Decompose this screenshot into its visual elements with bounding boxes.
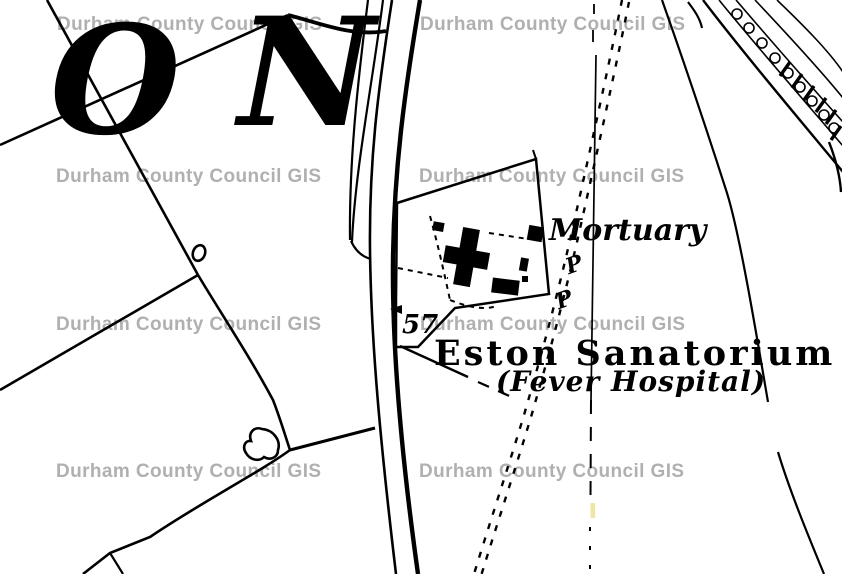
quarry-band bbox=[703, 0, 842, 192]
boundary-line bbox=[198, 275, 290, 450]
highlighted-dash bbox=[591, 503, 596, 518]
quarry-dark-hatch bbox=[780, 62, 841, 140]
vertical-boundary-top-dashes bbox=[593, 4, 594, 42]
field-boundary-right bbox=[662, 0, 824, 574]
boundary-fork bbox=[110, 553, 123, 574]
boundary-junction-loop bbox=[191, 243, 208, 262]
enclosure-tick bbox=[533, 150, 536, 159]
boundary-line bbox=[778, 452, 824, 574]
vertical-boundary-long-dashes bbox=[591, 400, 592, 498]
outbuilding bbox=[432, 221, 444, 232]
quarry-stripe bbox=[777, 0, 842, 72]
district-letter-o: O bbox=[50, 6, 181, 156]
mortuary-building bbox=[527, 225, 544, 242]
boundary-line-tail bbox=[688, 2, 702, 28]
buildings bbox=[432, 221, 544, 295]
pond-symbol bbox=[244, 428, 279, 459]
outbuilding-small bbox=[522, 276, 528, 282]
district-letter-n: N bbox=[238, 0, 375, 148]
vertical-boundary bbox=[590, 4, 596, 574]
plot-number-label: 57 bbox=[402, 312, 438, 338]
outbuilding bbox=[491, 277, 520, 295]
field-boundaries-lower-left bbox=[83, 428, 375, 574]
map-viewport[interactable]: Durham County Council GIS Durham County … bbox=[0, 0, 842, 574]
outbuilding-small bbox=[519, 257, 529, 271]
fever-hospital-label: (Fever Hospital) bbox=[496, 368, 766, 396]
boundary-line bbox=[290, 428, 375, 450]
quarry-edge bbox=[703, 0, 842, 172]
boundary-line bbox=[83, 450, 290, 574]
stream-outfall bbox=[351, 241, 371, 259]
boundary-line bbox=[0, 275, 198, 390]
mortuary-label: Mortuary bbox=[549, 216, 706, 246]
sanatorium-main-building bbox=[439, 225, 493, 290]
